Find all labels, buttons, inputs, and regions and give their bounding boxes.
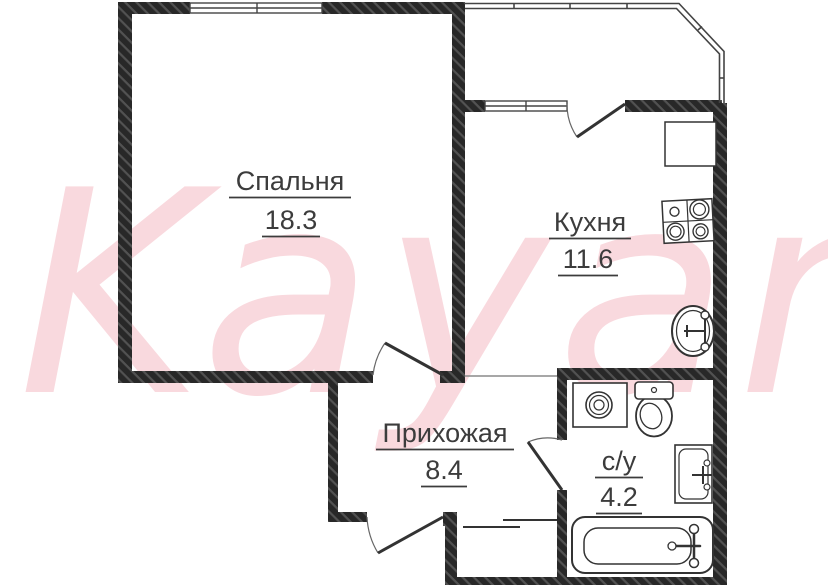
- wall-right: [713, 103, 727, 585]
- wall-balcony-left: [465, 100, 485, 112]
- entrance-door: [367, 517, 443, 553]
- wall-left: [118, 2, 132, 383]
- bedroom-window: [190, 3, 322, 13]
- kitchen-label: Кухня: [554, 207, 626, 237]
- wall-hallway-left: [328, 375, 338, 522]
- kitchen-sink-icon: [672, 306, 714, 356]
- bathroom-sink-icon: [675, 445, 712, 503]
- hallway-closet-lines: [463, 520, 557, 527]
- wall-bedroom-kitchen: [452, 2, 465, 375]
- kitchen-counter: [665, 122, 716, 166]
- balcony-glazing: [465, 4, 724, 104]
- floor-plan: Kayan: [0, 0, 828, 585]
- stove-icon: [662, 199, 714, 244]
- hallway-label: Прихожая: [382, 418, 507, 448]
- bathtub-icon: [572, 517, 713, 573]
- bathroom-label: с/у: [602, 446, 637, 476]
- wall-balcony-right: [625, 100, 722, 112]
- washing-machine-icon: [573, 383, 627, 427]
- bedroom-label: Спальня: [236, 166, 345, 196]
- floor-plan-svg: Kayan: [0, 0, 828, 585]
- bedroom-area: 18.3: [265, 205, 318, 235]
- wall-bathroom-left-upper: [557, 368, 567, 440]
- wall-hallway-bottom: [328, 512, 367, 522]
- wall-bottom: [445, 577, 727, 585]
- wall-top-right: [322, 2, 465, 14]
- hallway-area: 8.4: [425, 455, 463, 485]
- kayan-watermark: Kayan: [18, 130, 828, 459]
- toilet-icon: [635, 382, 673, 437]
- wall-bathroom-top: [557, 368, 713, 380]
- wall-entry-side: [445, 515, 457, 577]
- bathroom-label-group: с/у 4.2: [595, 446, 643, 514]
- wall-bathroom-left-lower: [557, 490, 567, 577]
- bathroom-area: 4.2: [600, 482, 638, 512]
- kitchen-area: 11.6: [563, 244, 614, 274]
- kitchen-window: [485, 101, 567, 111]
